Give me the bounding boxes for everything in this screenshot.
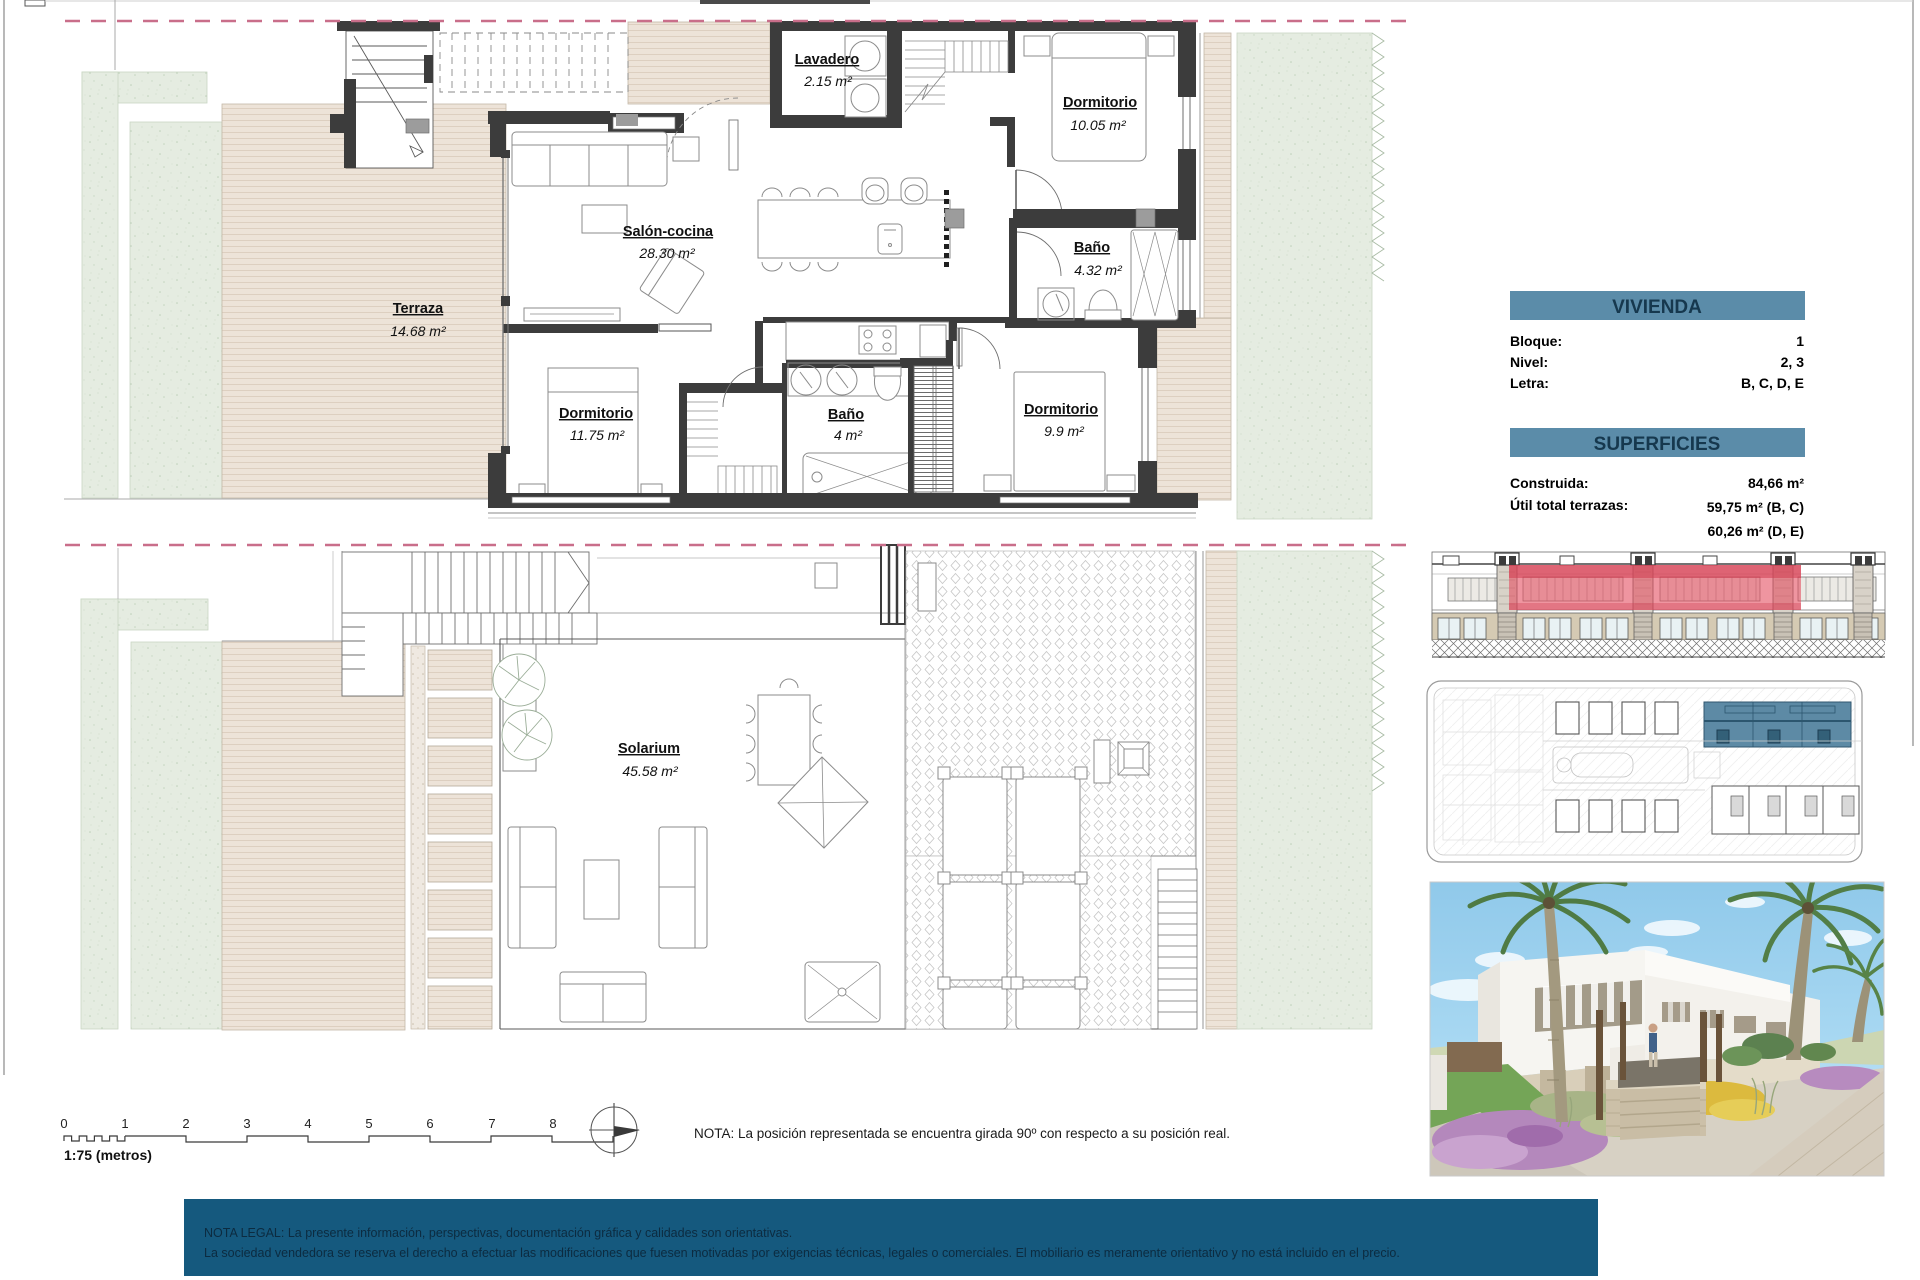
svg-text:9.9 m²: 9.9 m² xyxy=(1044,423,1085,439)
svg-text:45.58 m²: 45.58 m² xyxy=(622,763,679,779)
svg-text:Lavadero: Lavadero xyxy=(795,52,860,68)
svg-text:7: 7 xyxy=(488,1116,495,1131)
svg-text:Dormitorio: Dormitorio xyxy=(1024,402,1098,418)
svg-text:84,66 m²: 84,66 m² xyxy=(1748,475,1804,491)
svg-text:La sociedad vendedora se reser: La sociedad vendedora se reserva el dere… xyxy=(204,1246,1400,1260)
svg-text:1: 1 xyxy=(121,1116,128,1131)
svg-text:Baño: Baño xyxy=(1074,240,1110,256)
svg-text:Letra:: Letra: xyxy=(1510,375,1549,391)
svg-text:NOTA LEGAL: La presente inform: NOTA LEGAL: La presente información, per… xyxy=(204,1226,792,1240)
svg-text:Terraza: Terraza xyxy=(393,301,444,317)
svg-text:5: 5 xyxy=(365,1116,372,1131)
svg-text:Construida:: Construida: xyxy=(1510,475,1589,491)
svg-text:0: 0 xyxy=(60,1116,67,1131)
svg-text:Baño: Baño xyxy=(828,407,864,423)
svg-text:Salón-cocina: Salón-cocina xyxy=(623,224,714,240)
svg-text:SUPERFICIES: SUPERFICIES xyxy=(1594,434,1721,455)
svg-text:8: 8 xyxy=(549,1116,556,1131)
svg-text:28.30 m²: 28.30 m² xyxy=(638,245,696,261)
svg-text:Nivel:: Nivel: xyxy=(1510,354,1548,370)
svg-text:14.68 m²: 14.68 m² xyxy=(390,323,447,339)
svg-text:NOTA: La posición representada: NOTA: La posición representada se encuen… xyxy=(694,1126,1230,1141)
svg-text:59,75 m² (B, C): 59,75 m² (B, C) xyxy=(1707,499,1804,515)
svg-text:Solarium: Solarium xyxy=(618,741,680,757)
svg-text:11.75 m²: 11.75 m² xyxy=(570,427,626,443)
svg-text:3: 3 xyxy=(243,1116,250,1131)
svg-text:Dormitorio: Dormitorio xyxy=(559,406,633,422)
svg-text:60,26 m² (D, E): 60,26 m² (D, E) xyxy=(1708,523,1804,539)
svg-text:4: 4 xyxy=(304,1116,311,1131)
svg-text:4 m²: 4 m² xyxy=(834,427,863,443)
svg-text:2, 3: 2, 3 xyxy=(1781,354,1805,370)
svg-text:B, C, D, E: B, C, D, E xyxy=(1741,375,1804,391)
svg-text:10.05 m²: 10.05 m² xyxy=(1070,117,1127,133)
svg-text:VIVIENDA: VIVIENDA xyxy=(1612,297,1702,318)
svg-text:2.15 m²: 2.15 m² xyxy=(803,73,853,89)
svg-text:1: 1 xyxy=(1796,333,1804,349)
svg-text:1:75 (metros): 1:75 (metros) xyxy=(64,1147,152,1163)
svg-text:Bloque:: Bloque: xyxy=(1510,333,1562,349)
svg-text:4.32 m²: 4.32 m² xyxy=(1074,262,1123,278)
svg-text:2: 2 xyxy=(182,1116,189,1131)
svg-text:Dormitorio: Dormitorio xyxy=(1063,95,1137,111)
svg-text:6: 6 xyxy=(426,1116,433,1131)
svg-text:Útil total terrazas:: Útil total terrazas: xyxy=(1510,496,1628,513)
